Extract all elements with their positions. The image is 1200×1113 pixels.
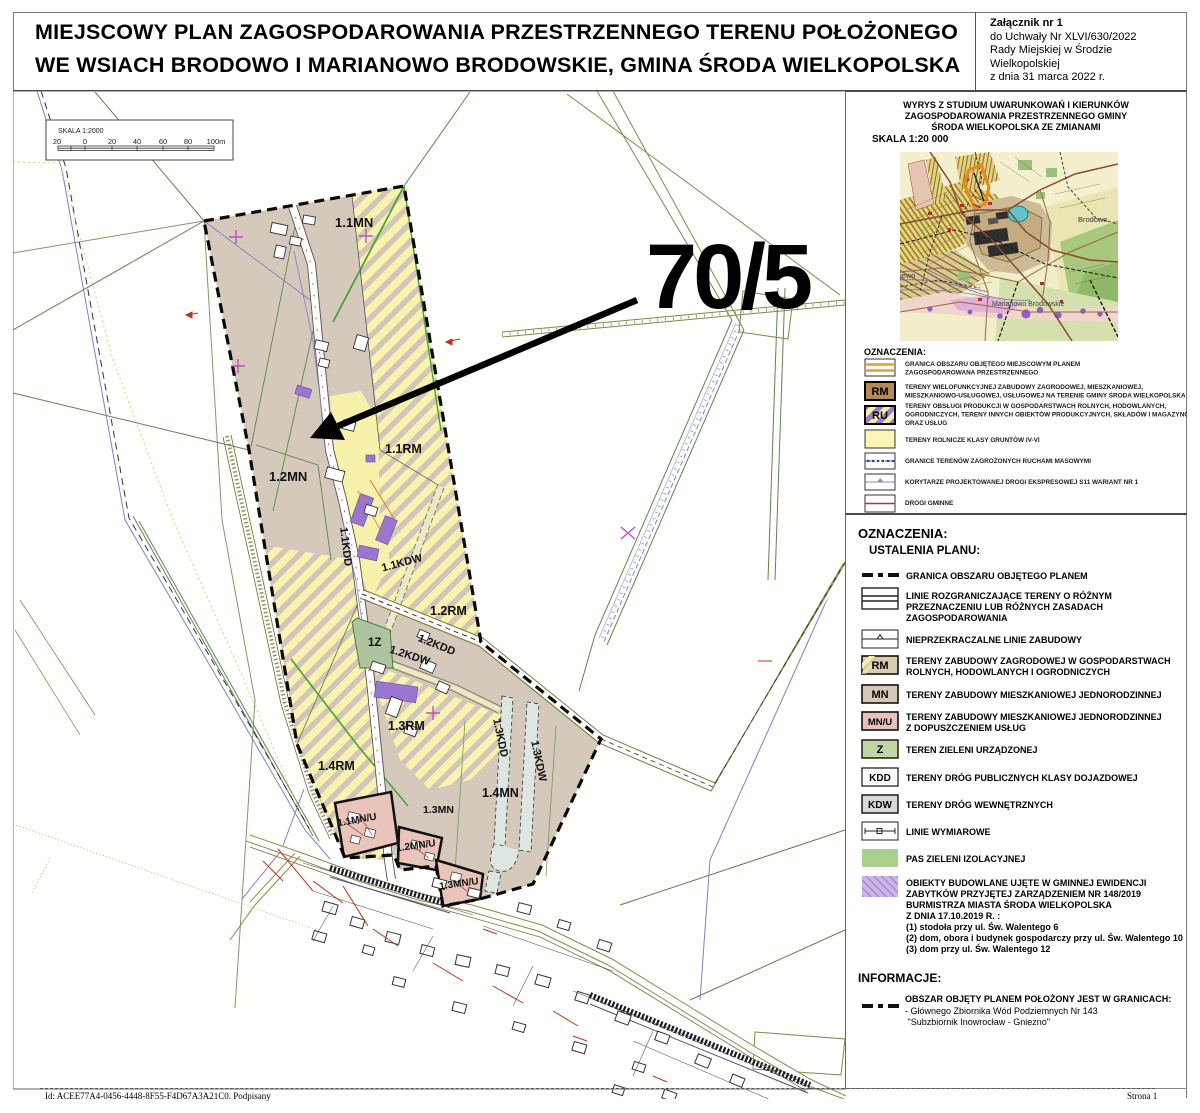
svg-text:ORAZ USŁUG: ORAZ USŁUG: [905, 420, 947, 427]
svg-text:40: 40: [133, 137, 141, 146]
svg-text:Z: Z: [877, 744, 884, 756]
svg-text:1.4MN: 1.4MN: [482, 786, 519, 800]
svg-text:1Z: 1Z: [368, 637, 381, 649]
svg-text:Brodowo: Brodowo: [1078, 215, 1108, 224]
svg-text:1.2RM: 1.2RM: [430, 604, 467, 618]
svg-text:Marianowo Brodowskie: Marianowo Brodowskie: [992, 301, 1064, 308]
svg-text:RM: RM: [871, 660, 888, 672]
svg-text:KDD: KDD: [869, 773, 891, 784]
svg-text:KDW: KDW: [868, 800, 892, 811]
svg-text:TERENY OBSŁUGI PRODUKCJI W GOS: TERENY OBSŁUGI PRODUKCJI W GOSPODARSTWAC…: [905, 403, 1166, 410]
svg-text:20: 20: [53, 137, 61, 146]
svg-text:1.1MN: 1.1MN: [335, 215, 373, 230]
svg-text:KORYTARZE PROJEKTOWANEJ DROGI: KORYTARZE PROJEKTOWANEJ DROGI EKSPRESOWE…: [905, 479, 1139, 486]
svg-text:1.2MN: 1.2MN: [269, 469, 307, 484]
svg-text:1.3RM: 1.3RM: [388, 719, 425, 733]
svg-text:ZAGOSPODAROWANA PRZESTRZENNEGO: ZAGOSPODAROWANA PRZESTRZENNEGO: [905, 370, 1038, 377]
svg-text:TERENY WIELOFUNKCYJNEJ ZABUDOW: TERENY WIELOFUNKCYJNEJ ZABUDOWY ZAGRODOW…: [905, 384, 1143, 391]
svg-text:GRANICA OBSZARU OBJĘTEGO MIEJS: GRANICA OBSZARU OBJĘTEGO MIEJSCOWYM PLAN…: [905, 361, 1080, 368]
svg-text:RM: RM: [871, 386, 888, 398]
svg-text:70/5: 70/5: [646, 226, 811, 328]
svg-text:20: 20: [108, 137, 116, 146]
svg-text:0: 0: [83, 137, 87, 146]
svg-text:1.3MN: 1.3MN: [423, 804, 454, 816]
svg-text:TERENY ROLNICZE KLASY GRUNTÓW: TERENY ROLNICZE KLASY GRUNTÓW IV-VI: [905, 435, 1040, 444]
svg-text:SKALA 1:2000: SKALA 1:2000: [58, 128, 104, 135]
svg-text:DROGI GMINNE: DROGI GMINNE: [905, 500, 954, 507]
svg-text:1.1RM: 1.1RM: [385, 442, 422, 456]
svg-text:MN: MN: [871, 689, 888, 701]
svg-text:OGRODNICZYCH, TERENY INNYCH OB: OGRODNICZYCH, TERENY INNYCH OBIEKTÓW PRO…: [905, 410, 1187, 419]
svg-text:RU: RU: [872, 410, 888, 422]
svg-text:1.4RM: 1.4RM: [318, 759, 355, 773]
svg-text:MN/U: MN/U: [868, 717, 892, 728]
svg-text:80: 80: [184, 137, 192, 146]
svg-text:jewo: jewo: [900, 271, 915, 280]
svg-text:100m: 100m: [207, 137, 226, 146]
svg-text:60: 60: [159, 137, 167, 146]
svg-text:GRANICE TERENÓW ZAGROŻONYCH RU: GRANICE TERENÓW ZAGROŻONYCH RUCHAMI MASO…: [905, 456, 1091, 465]
svg-text:MIESZKANIOWO-USŁUGOWEJ, USŁUGO: MIESZKANIOWO-USŁUGOWEJ, USŁUGOWEJ NA TER…: [905, 391, 1186, 400]
